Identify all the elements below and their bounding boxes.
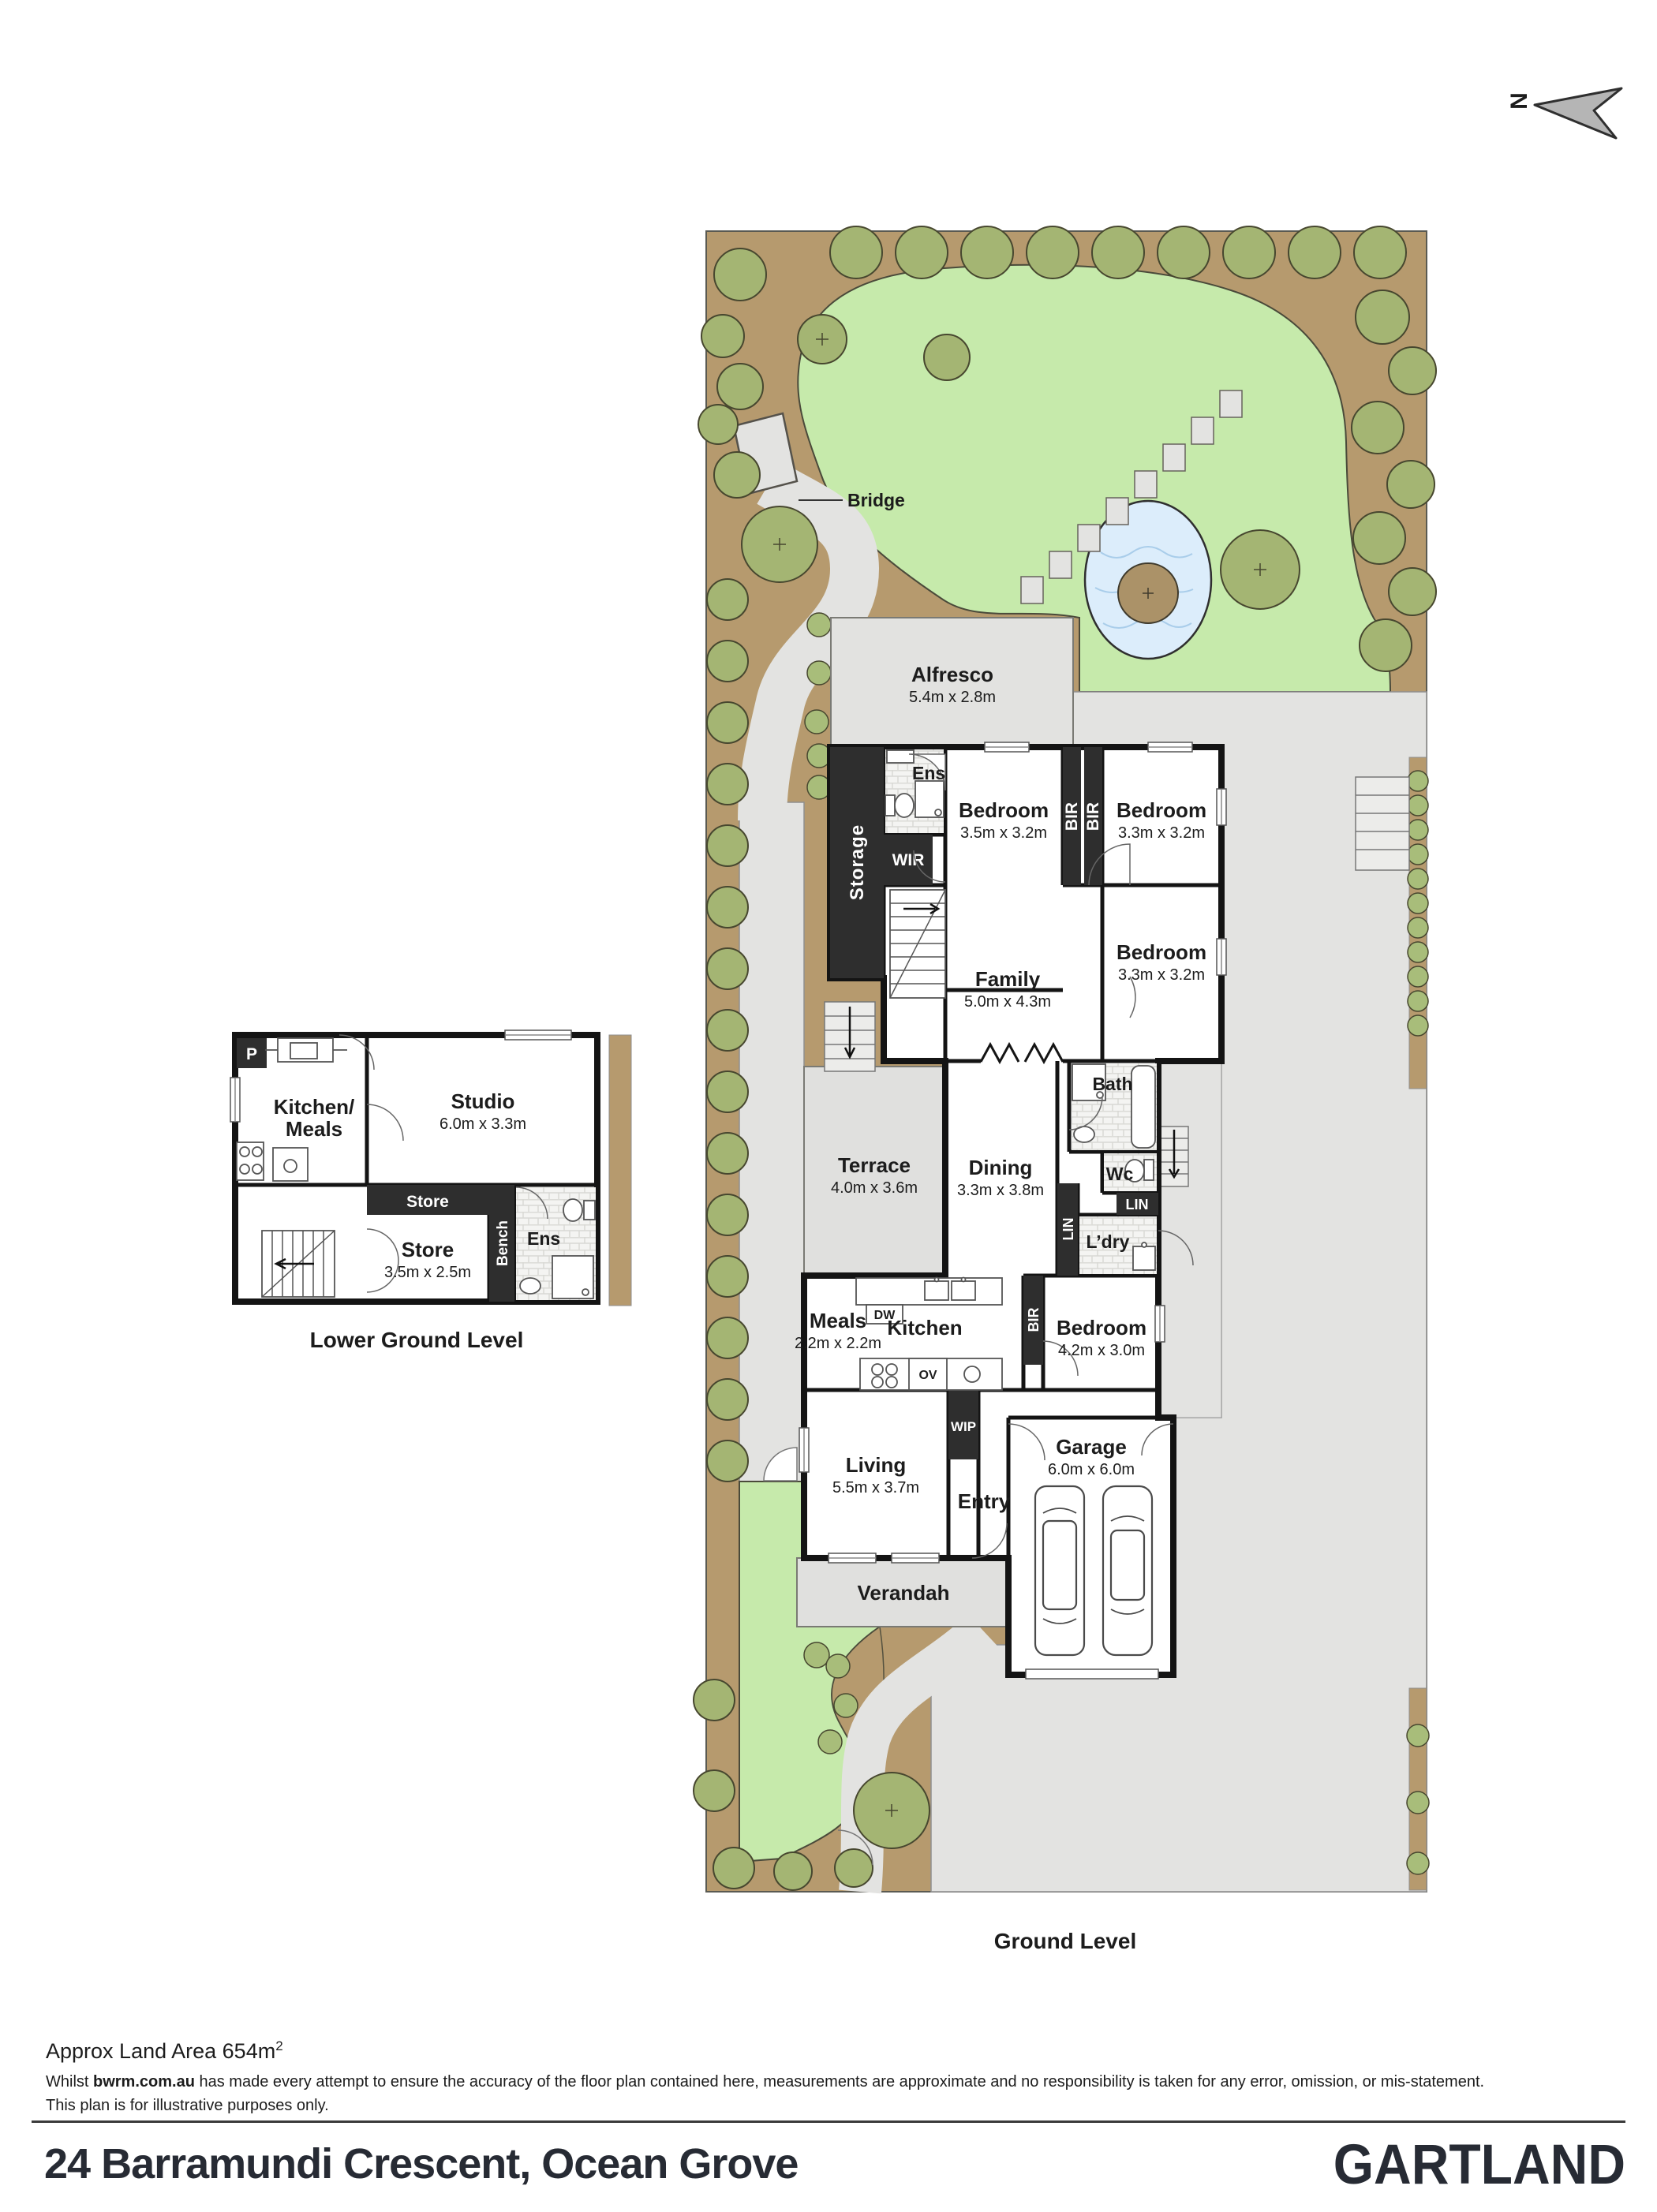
lin-label-1: LIN xyxy=(1126,1197,1149,1212)
living-dims: 5.5m x 3.7m xyxy=(832,1479,919,1496)
east-walk-steps xyxy=(1356,777,1409,870)
wip-label: WIP xyxy=(951,1419,976,1434)
studio-label: Studio xyxy=(451,1089,515,1113)
bedroom2-label: Bedroom xyxy=(1117,798,1206,822)
lower-store-dims: 3.5m x 2.5m xyxy=(384,1264,471,1281)
family-label: Family xyxy=(975,967,1041,991)
disclaimer-rest: has made every attempt to ensure the acc… xyxy=(195,2073,1484,2091)
land-area-text: Approx Land Area 654m2 xyxy=(46,2038,283,2064)
floorplan-canvas: N Bridge xyxy=(0,0,1657,2212)
alfresco-label: Alfresco xyxy=(911,663,993,686)
north-arrow-icon: N xyxy=(1506,88,1621,138)
disclaimer-text: Whilst bwrm.com.au has made every attemp… xyxy=(46,2070,1592,2117)
floorplan-page: N Bridge xyxy=(0,0,1657,2212)
lin-label-2: LIN xyxy=(1060,1218,1076,1241)
bedroom3-dims: 3.3m x 3.2m xyxy=(1118,966,1205,984)
pond xyxy=(1085,501,1211,659)
ov-label: OV xyxy=(918,1369,937,1382)
lower-ens-label: Ens xyxy=(527,1228,560,1249)
internal-stairs xyxy=(890,890,945,998)
store-band-label: Store xyxy=(406,1193,449,1211)
terrace-label: Terrace xyxy=(838,1153,911,1177)
garage-dims: 6.0m x 6.0m xyxy=(1048,1461,1135,1478)
bath-label: Bath xyxy=(1092,1074,1132,1094)
bir-label-2: BIR xyxy=(1084,802,1102,831)
east-planter-bushes xyxy=(1408,771,1428,1036)
ens-label: Ens xyxy=(912,763,945,783)
land-area-value: Approx Land Area 654m xyxy=(46,2039,275,2063)
north-letter: N xyxy=(1506,92,1532,110)
lower-stairs xyxy=(262,1231,335,1297)
wc-label: Wc xyxy=(1106,1164,1134,1184)
east-stairs xyxy=(1160,1127,1188,1186)
alfresco-dims: 5.4m x 2.8m xyxy=(909,689,996,706)
disclaimer-line2: This plan is for illustrative purposes o… xyxy=(46,2097,329,2114)
bedroom4-dims: 4.2m x 3.0m xyxy=(1058,1342,1145,1359)
dining-dims: 3.3m x 3.8m xyxy=(957,1182,1044,1199)
laundry-trough xyxy=(1133,1242,1155,1270)
west-border-trees xyxy=(707,579,748,1482)
land-area-sup: 2 xyxy=(275,2038,282,2053)
footer-divider xyxy=(32,2120,1625,2123)
lower-kitchen-meals-label-2: Meals xyxy=(286,1117,342,1141)
kitchen-label: Kitchen xyxy=(887,1316,962,1340)
studio-dims: 6.0m x 3.3m xyxy=(439,1115,526,1133)
lower-store-label: Store xyxy=(402,1238,454,1261)
lower-garden-strip xyxy=(609,1035,631,1306)
pantry-label: P xyxy=(246,1045,257,1063)
bedroom2-dims: 3.3m x 3.2m xyxy=(1118,824,1205,842)
wir-label: WIR xyxy=(892,851,925,869)
bridge-label: Bridge xyxy=(847,490,905,510)
entry-label: Entry xyxy=(958,1489,1011,1513)
meals-label: Meals xyxy=(810,1309,866,1332)
lower-ground-plan: P Store Bench xyxy=(230,1030,631,1352)
ground-level-caption: Ground Level xyxy=(994,1929,1136,1953)
lower-kitchen-meals-label-1: Kitchen/ xyxy=(274,1095,355,1119)
storage-label: Storage xyxy=(847,824,868,900)
ldry-label: L’dry xyxy=(1087,1231,1130,1252)
bedroom1-dims: 3.5m x 3.2m xyxy=(960,824,1047,842)
bir-label-1: BIR xyxy=(1063,802,1081,831)
agency-logo: GARTLAND xyxy=(1333,2132,1625,2196)
bench-label: Bench xyxy=(495,1220,511,1266)
disclaimer-domain: bwrm.com.au xyxy=(93,2073,195,2091)
bedroom3-label: Bedroom xyxy=(1117,940,1206,964)
garage-label: Garage xyxy=(1056,1435,1127,1459)
site-plan-ground: Bridge xyxy=(694,226,1436,1953)
meals-dims: 2.2m x 2.2m xyxy=(795,1335,881,1352)
west-walkway xyxy=(739,802,804,1482)
bedroom1-label: Bedroom xyxy=(959,798,1049,822)
disclaimer-prefix: Whilst xyxy=(46,2073,93,2091)
verandah-label: Verandah xyxy=(857,1581,949,1605)
terrace-dims: 4.0m x 3.6m xyxy=(831,1179,918,1197)
bedroom4-label: Bedroom xyxy=(1057,1316,1146,1340)
family-dims: 5.0m x 4.3m xyxy=(964,993,1051,1011)
lower-ground-caption: Lower Ground Level xyxy=(310,1328,524,1352)
east-side-strip xyxy=(1158,1061,1221,1418)
property-address: 24 Barramundi Crescent, Ocean Grove xyxy=(44,2139,798,2188)
living-label: Living xyxy=(846,1453,907,1477)
west-exterior-stairs xyxy=(825,1002,875,1071)
dining-label: Dining xyxy=(969,1156,1033,1179)
bir-label-4: BIR xyxy=(1026,1308,1042,1332)
